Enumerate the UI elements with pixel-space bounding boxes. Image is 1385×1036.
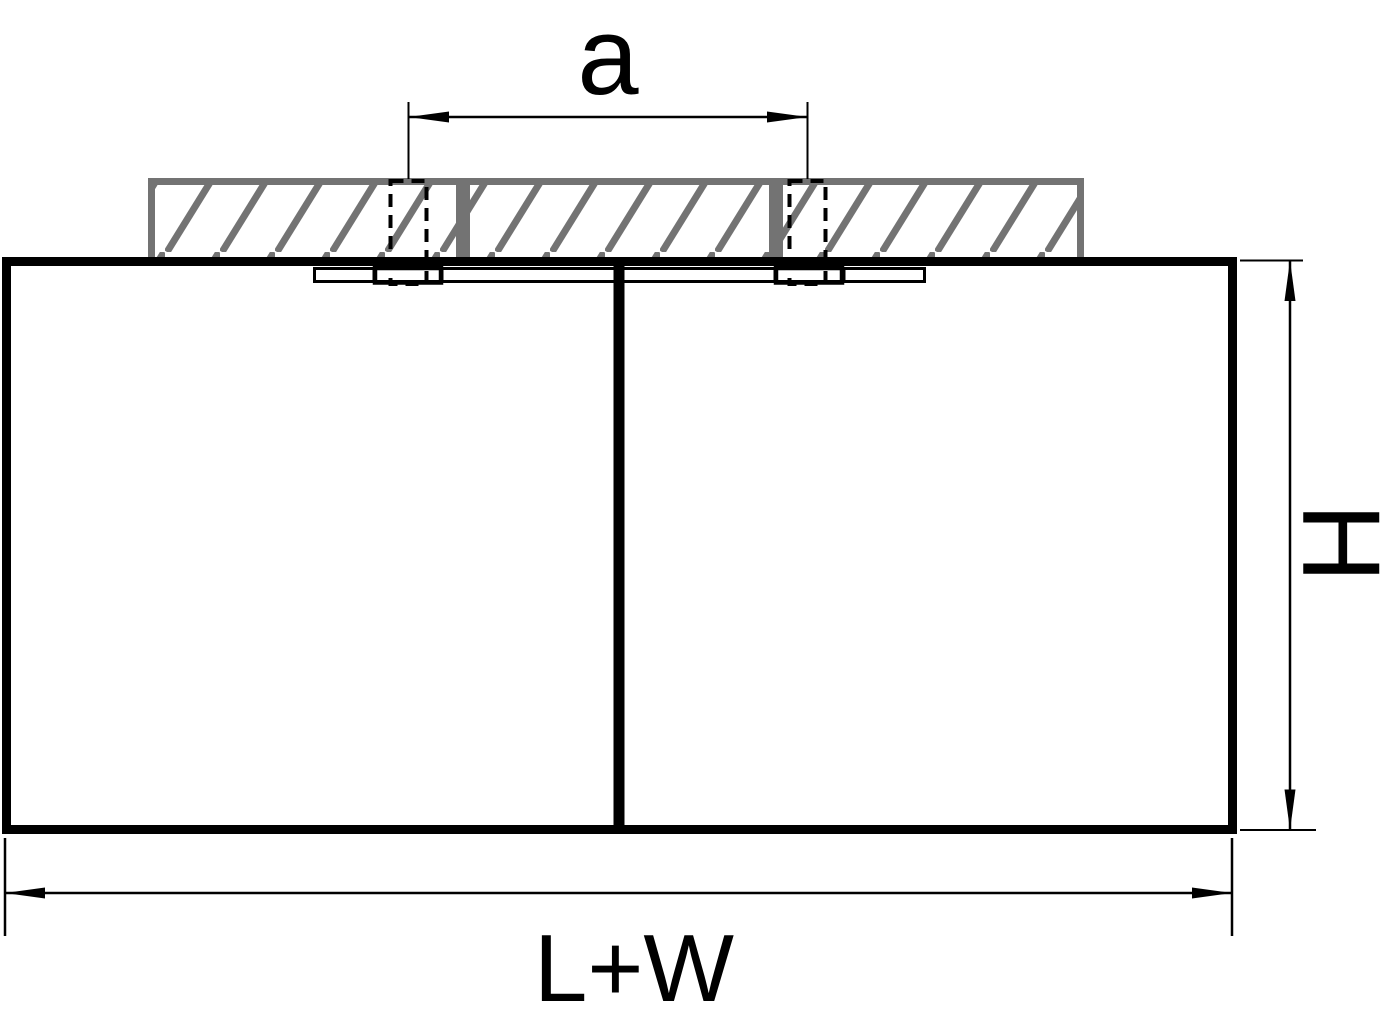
dim-lw-arrow-right (1192, 888, 1232, 899)
ceiling-hatch-segment-middle (467, 182, 773, 262)
dim-a: a (409, 0, 808, 179)
dim-a-arrow-left (409, 112, 450, 123)
dim-a-label: a (577, 0, 639, 118)
ceiling-section (152, 182, 1081, 262)
dim-h-label: H (1279, 503, 1385, 582)
dim-h-arrow-top (1285, 261, 1296, 302)
dim-h-arrow-bottom (1285, 790, 1296, 831)
ink: a H L+W (5, 0, 1385, 1022)
dim-lw-arrow-left (5, 888, 45, 899)
dim-lw-label: L+W (534, 915, 734, 1022)
dim-lw: L+W (5, 838, 1232, 1022)
ceiling-hatch-segment-left (152, 182, 460, 262)
technical-drawing-page: a H L+W (0, 0, 1385, 1036)
installation-diagram: a H L+W (0, 0, 1385, 1036)
dim-h: H (1240, 261, 1385, 831)
dim-a-arrow-right (767, 112, 808, 123)
